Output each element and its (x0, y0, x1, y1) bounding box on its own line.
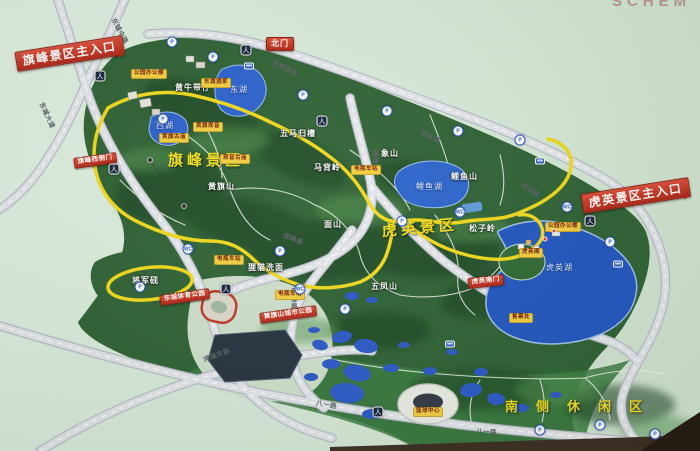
aquatic-center (208, 330, 302, 382)
map-graphic (0, 0, 700, 451)
lake-west (149, 112, 188, 145)
park-map-photo: SCHEM 东城中路东城大道东城南路迎宾路迎宾路旗峰路旗峰路新源路鸿福东路八一路… (0, 0, 700, 451)
partial-english-title: SCHEM (612, 0, 691, 10)
lake-liyu (394, 161, 468, 208)
basketball-arena (398, 384, 458, 424)
